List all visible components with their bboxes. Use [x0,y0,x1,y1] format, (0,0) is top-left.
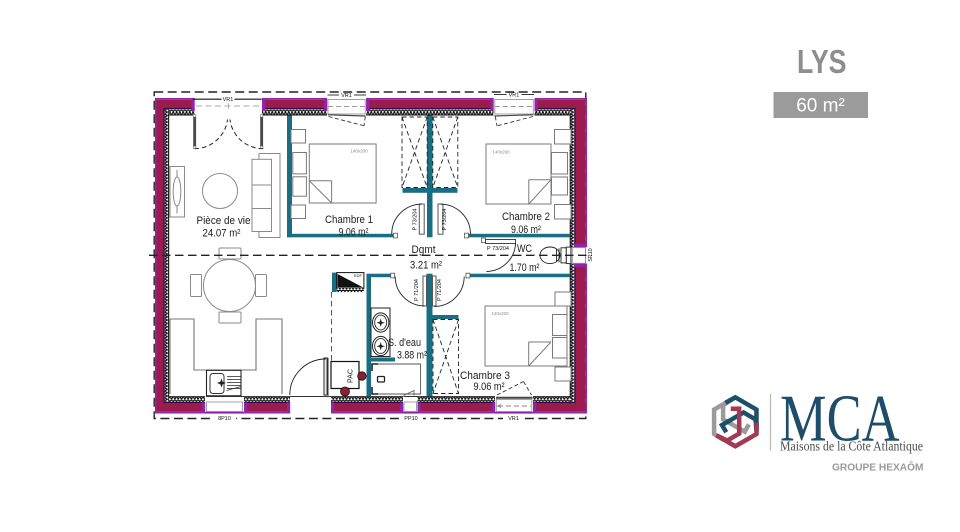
svg-text:3.21 m²: 3.21 m² [410,259,442,271]
svg-text:1.70 m²: 1.70 m² [510,262,540,274]
svg-text:P 71/204: P 71/204 [414,279,420,301]
svg-text:140x200: 140x200 [492,150,510,155]
svg-text:P 73/204: P 73/204 [487,246,509,252]
svg-text:Dgmt: Dgmt [412,244,436,256]
svg-text:3.88 m²: 3.88 m² [397,349,427,361]
svg-text:9.06 m²: 9.06 m² [474,381,505,393]
svg-text:P 73/204: P 73/204 [442,209,448,231]
svg-text:VR1: VR1 [341,93,352,99]
svg-text:S. d'eau: S. d'eau [388,337,421,349]
svg-text:VR1: VR1 [508,416,519,422]
svg-text:24.07 m²: 24.07 m² [203,228,241,240]
svg-text:VR1: VR1 [223,97,234,103]
svg-text:PP10: PP10 [404,416,417,422]
svg-text:WC: WC [517,243,532,255]
svg-text:EDF: EDF [354,273,363,278]
svg-text:P 73/204: P 73/204 [413,209,419,231]
svg-text:140x200: 140x200 [350,149,368,154]
svg-text:Chambre 2: Chambre 2 [502,211,550,223]
svg-text:VR1: VR1 [509,92,520,98]
svg-text:140x200: 140x200 [491,311,509,316]
svg-text:GROUPE HEXAÔM: GROUPE HEXAÔM [832,461,924,474]
svg-text:9.06 m²: 9.06 m² [339,226,369,238]
svg-text:Chambre 1: Chambre 1 [325,214,373,226]
svg-text:P 71/204: P 71/204 [437,279,443,301]
svg-text:PAC: PAC [348,369,355,383]
svg-text:60 m²: 60 m² [796,96,845,117]
svg-text:Maisons de la Côte Atlantique: Maisons de la Côte Atlantique [780,439,923,454]
svg-text:8P10: 8P10 [218,416,231,422]
svg-text:Pièce de vie: Pièce de vie [197,215,251,227]
svg-text:9.06 m²: 9.06 m² [511,224,541,236]
svg-text:SP10: SP10 [588,248,594,261]
svg-text:LYS: LYS [797,43,847,80]
